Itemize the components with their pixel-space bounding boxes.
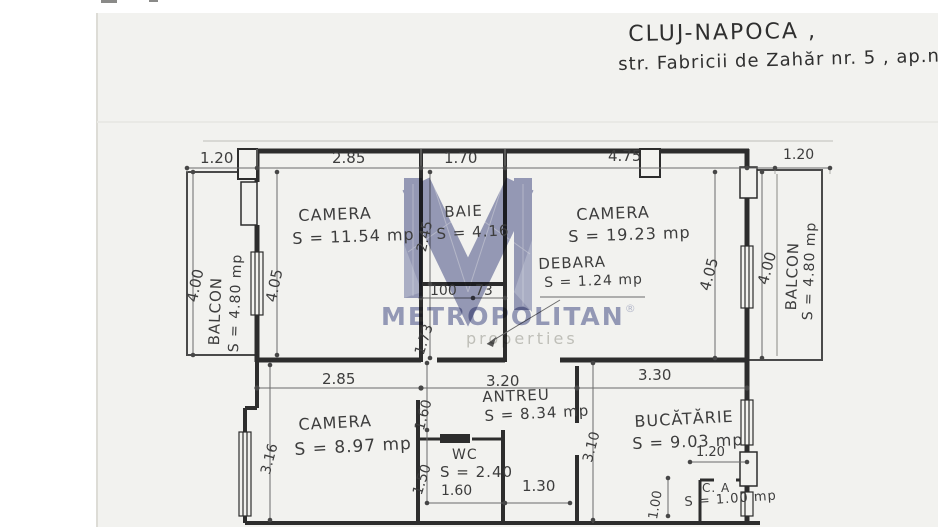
- door-left-balcony: [241, 182, 257, 225]
- dim-camara-120: 1.20: [696, 445, 725, 460]
- dim-top-285: 2.85: [332, 149, 365, 167]
- label-baie-area: S = 4.16: [436, 221, 510, 243]
- wc-door-stub: [440, 434, 470, 443]
- dim-baie-73: 73: [475, 283, 493, 299]
- label-baie-name: BAIE: [444, 202, 483, 221]
- label-debara-name: DEBARA: [538, 253, 606, 273]
- dim-hall-130: 1.30: [522, 477, 555, 495]
- window-right-balcony: [741, 246, 753, 308]
- dim-baie-100: 100: [430, 283, 457, 299]
- dim-mid-285: 2.85: [322, 370, 355, 388]
- dim-wc-160: 1.60: [441, 483, 472, 499]
- label-wc-name: WC: [452, 447, 478, 463]
- door-kitchen-balcony: [740, 452, 757, 486]
- scanned-floor-plan-page: CLUJ-NAPOCA , str. Fabricii de Zahăr nr.…: [0, 0, 938, 527]
- metropolitan-brand-text: METROPOLITAN: [381, 302, 625, 331]
- window-left-balcony: [251, 252, 263, 315]
- label-wc-area: S = 2.40: [440, 463, 513, 481]
- label-camera3-name: CAMERA: [298, 411, 372, 434]
- dim-top-475: 4.75: [608, 147, 641, 165]
- label-balcon-left-name: BALCON: [205, 277, 225, 346]
- label-bucatarie-area: S = 9.03 mp: [632, 430, 744, 453]
- dim-mid-320: 3.20: [486, 372, 519, 390]
- metropolitan-subtitle: properties: [466, 329, 578, 348]
- dim-mid-330: 3.30: [638, 366, 671, 384]
- label-debara-area: S = 1.24 mp: [544, 272, 643, 291]
- label-camera2-name: CAMERA: [576, 202, 650, 224]
- dim-top-120-left: 1.20: [200, 149, 233, 167]
- dim-top-170: 1.70: [444, 149, 477, 167]
- document-city-title: CLUJ-NAPOCA ,: [628, 19, 817, 47]
- door-right-balcony: [740, 167, 757, 198]
- window-camera3: [239, 432, 251, 516]
- registered-trademark-symbol: ®: [625, 302, 638, 315]
- label-camera1-name: CAMERA: [298, 203, 372, 225]
- metropolitan-wordmark: METROPOLITAN®: [381, 302, 638, 331]
- label-balcon-right-name: BALCON: [782, 242, 802, 311]
- dim-top-120-right: 1.20: [783, 147, 814, 163]
